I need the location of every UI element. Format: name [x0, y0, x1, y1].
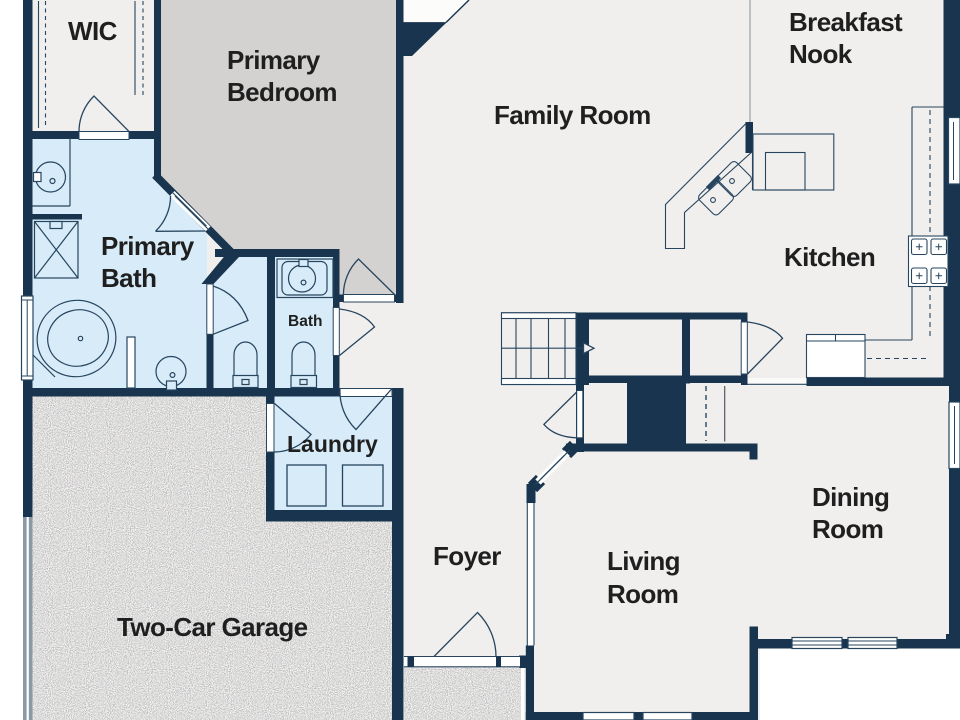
svg-text:Bath: Bath: [101, 263, 156, 293]
svg-text:Primary: Primary: [101, 231, 195, 261]
svg-text:Breakfast: Breakfast: [789, 7, 903, 37]
svg-text:Nook: Nook: [789, 39, 853, 69]
svg-text:Room: Room: [812, 514, 883, 544]
svg-text:Dining: Dining: [812, 482, 889, 512]
svg-text:Room: Room: [607, 579, 678, 609]
svg-text:Laundry: Laundry: [287, 431, 378, 457]
svg-text:Living: Living: [607, 546, 680, 576]
svg-text:Kitchen: Kitchen: [784, 242, 875, 272]
svg-text:Family Room: Family Room: [494, 100, 651, 130]
svg-text:Two-Car Garage: Two-Car Garage: [117, 612, 308, 642]
svg-text:Foyer: Foyer: [433, 541, 501, 571]
svg-text:Bath: Bath: [288, 313, 322, 330]
svg-text:Primary: Primary: [227, 45, 321, 75]
svg-text:Bedroom: Bedroom: [227, 77, 337, 107]
svg-text:WIC: WIC: [68, 16, 118, 46]
